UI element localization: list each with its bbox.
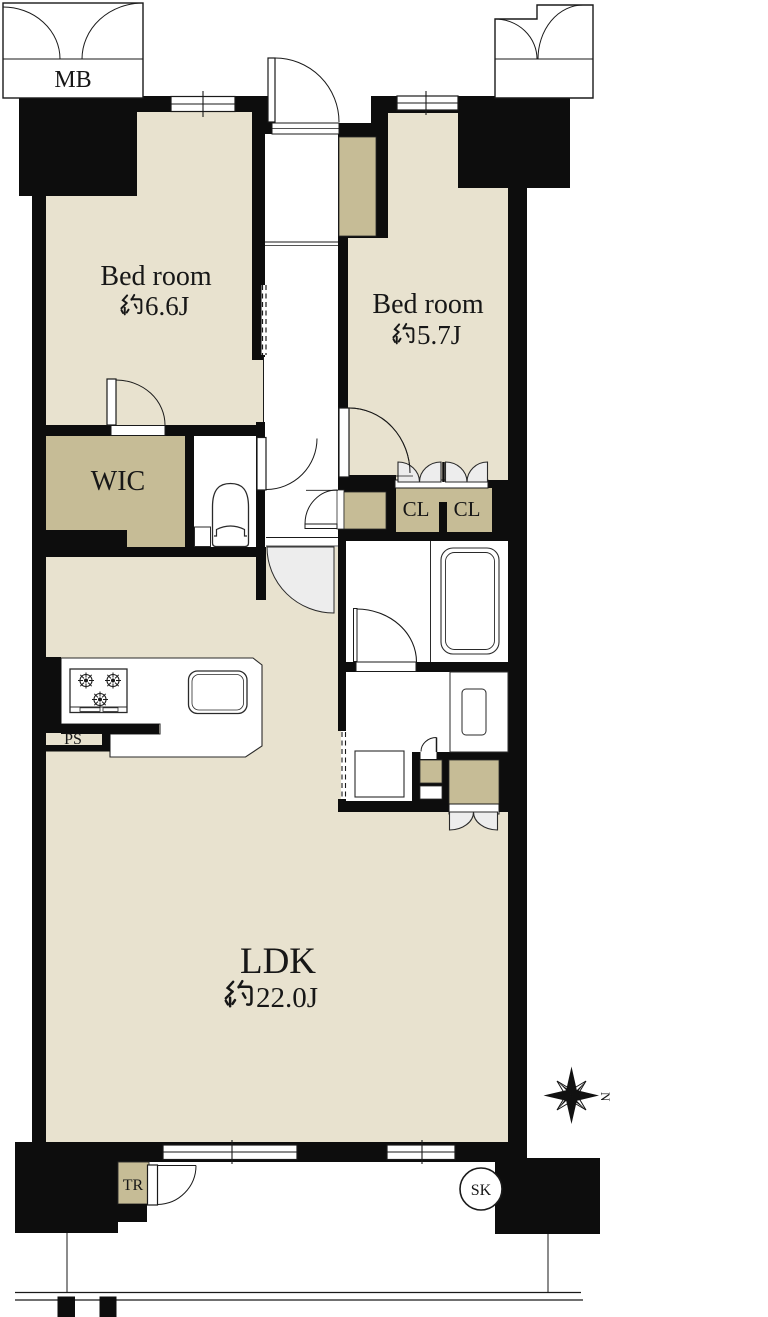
svg-text:Bed room: Bed room — [372, 289, 483, 320]
svg-text:TR: TR — [123, 1177, 144, 1194]
svg-text:MB: MB — [54, 67, 91, 93]
svg-text:PS: PS — [64, 731, 82, 748]
svg-text:SK: SK — [471, 1182, 492, 1199]
svg-text:WIC: WIC — [91, 466, 145, 497]
svg-text:6.6J: 6.6J — [145, 291, 189, 321]
svg-text:CL: CL — [454, 497, 481, 521]
svg-text:Bed room: Bed room — [100, 261, 211, 292]
svg-text:22.0J: 22.0J — [256, 982, 318, 1014]
svg-text:5.7J: 5.7J — [417, 320, 461, 350]
svg-text:N: N — [598, 1092, 613, 1102]
svg-text:CL: CL — [403, 497, 430, 521]
svg-text:LDK: LDK — [240, 941, 316, 982]
